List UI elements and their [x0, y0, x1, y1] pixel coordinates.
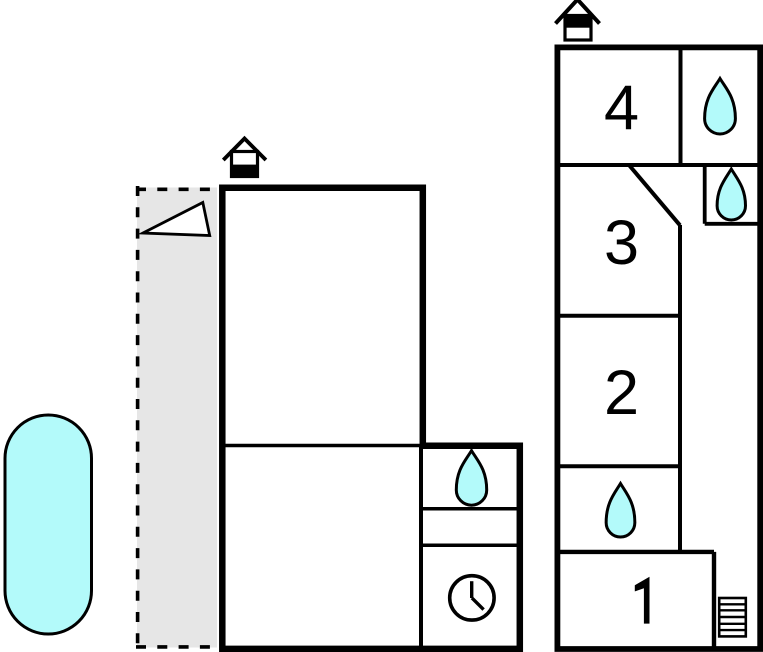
- svg-text:2: 2: [604, 358, 639, 428]
- svg-text:4: 4: [604, 73, 639, 143]
- svg-text:3: 3: [604, 208, 639, 278]
